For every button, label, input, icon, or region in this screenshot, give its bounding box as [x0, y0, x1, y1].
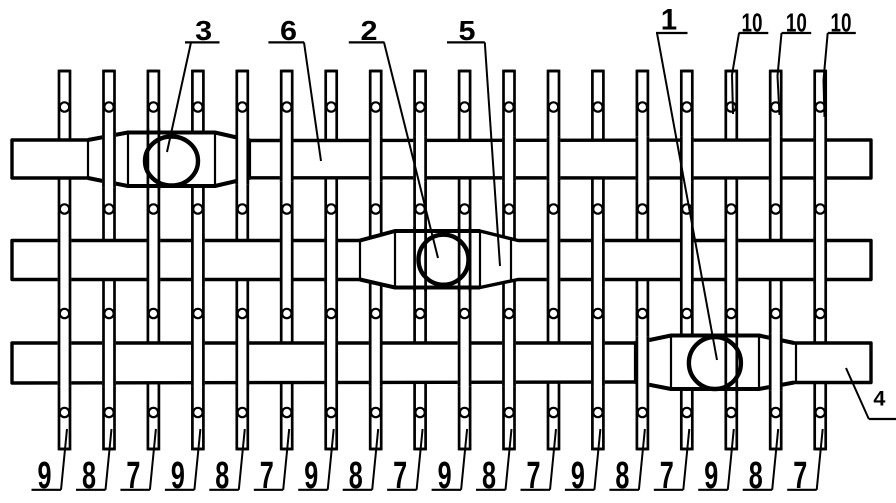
svg-text:1: 1 — [661, 4, 677, 37]
svg-text:4: 4 — [873, 387, 885, 410]
